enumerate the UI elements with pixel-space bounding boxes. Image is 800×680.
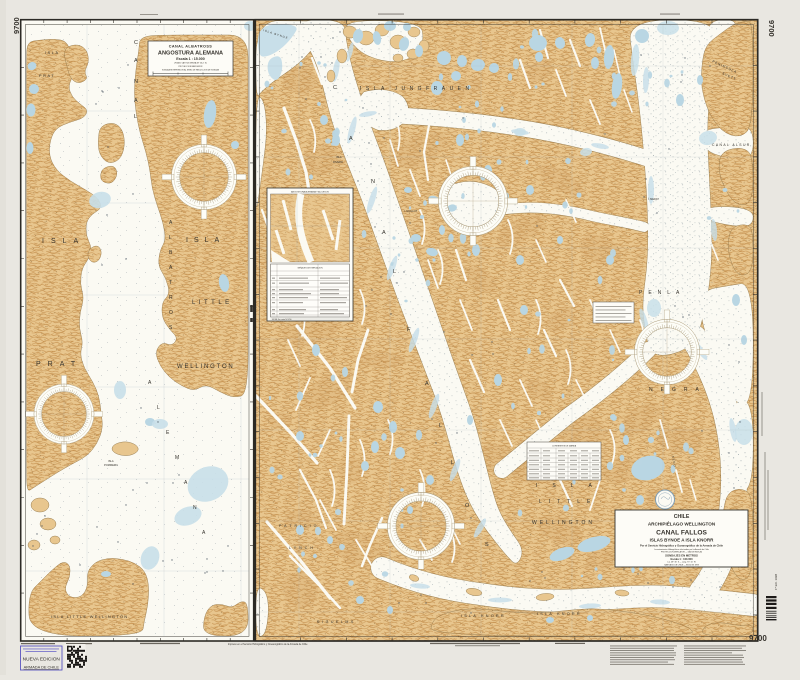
- svg-text:LYNCH: LYNCH: [289, 546, 316, 550]
- svg-text:ISLA: ISLA: [186, 237, 225, 244]
- svg-text:WELLINGTON: WELLINGTON: [177, 364, 235, 370]
- svg-text:SANTIAGO DE CHILE — EDICION 19: SANTIAGO DE CHILE — EDICION 1998: [664, 563, 699, 566]
- svg-text:Por el Servicio Hidrográfico y: Por el Servicio Hidrográfico y Oceanográ…: [640, 544, 723, 548]
- svg-text:L: L: [157, 405, 160, 411]
- svg-text:ISLA JUNGFRAUEN: ISLA JUNGFRAUEN: [360, 86, 474, 92]
- svg-text:LITTLE: LITTLE: [192, 300, 233, 306]
- svg-text:ISLA: ISLA: [42, 238, 85, 245]
- svg-text:ANGOSTURA ALEMANA: ANGOSTURA ALEMANA: [158, 51, 223, 57]
- svg-text:I. MEDIO: I. MEDIO: [648, 197, 659, 201]
- svg-text:A: A: [134, 58, 138, 64]
- svg-text:R: R: [169, 295, 173, 301]
- svg-text:L: L: [169, 235, 172, 241]
- svg-text:T: T: [169, 280, 172, 286]
- svg-text:M: M: [175, 455, 179, 461]
- svg-text:L: L: [134, 114, 137, 120]
- svg-text:PATRICIO: PATRICIO: [279, 524, 319, 528]
- svg-text:WELLINGTON: WELLINGTON: [532, 520, 595, 526]
- svg-text:ISLA LITTLE WELLINGTON: ISLA LITTLE WELLINGTON: [51, 614, 128, 619]
- svg-text:O: O: [465, 503, 470, 509]
- svg-text:Escala 1 : 100.000: Escala 1 : 100.000: [670, 557, 693, 561]
- svg-text:C: C: [333, 85, 337, 91]
- svg-text:A: A: [349, 136, 353, 142]
- svg-text:9700: 9700: [12, 17, 21, 34]
- svg-text:RIGUELMS: RIGUELMS: [317, 620, 356, 624]
- svg-text:ISLA: ISLA: [108, 459, 114, 463]
- svg-text:9700: 9700: [767, 20, 776, 37]
- svg-text:PROYECCION MERCATOR: PROYECCION MERCATOR: [179, 65, 204, 68]
- svg-text:SONDAJES EN METROS: SONDAJES EN METROS: [665, 553, 698, 557]
- svg-text:CHILE: CHILE: [674, 514, 690, 520]
- svg-text:Escala 1 : 15.000: Escala 1 : 15.000: [176, 57, 205, 61]
- svg-text:ISLA KNORR: ISLA KNORR: [461, 614, 506, 618]
- svg-text:Impreso en el Servicio Hidrogr: Impreso en el Servicio Hidrográfico y Oc…: [228, 643, 308, 646]
- svg-text:N: N: [134, 79, 138, 85]
- svg-text:SONDAJES REFERIDOS AL NIVEL DE: SONDAJES REFERIDOS AL NIVEL DE REDUCCION…: [162, 69, 220, 72]
- svg-text:9700: 9700: [749, 634, 767, 643]
- svg-text:NUEVA EDICION: NUEVA EDICION: [23, 657, 61, 663]
- svg-text:O: O: [169, 310, 173, 316]
- svg-text:PRAT: PRAT: [39, 74, 55, 78]
- svg-text:L: L: [451, 460, 454, 466]
- svg-text:ISLA: ISLA: [45, 51, 60, 55]
- svg-text:NEGRA: NEGRA: [649, 387, 707, 393]
- svg-text:LITTLE: LITTLE: [539, 499, 597, 505]
- svg-text:PRAT: PRAT: [36, 361, 82, 368]
- svg-text:CORRIENTES DE MAREA: CORRIENTES DE MAREA: [552, 445, 577, 448]
- svg-text:CANAL ALBATROSS: CANAL ALBATROSS: [169, 45, 213, 49]
- svg-text:N: N: [193, 505, 197, 511]
- svg-text:SEÑALES DE ENFILACION: SEÑALES DE ENFILACION: [297, 267, 323, 270]
- svg-text:S: S: [485, 542, 489, 548]
- svg-text:A: A: [425, 381, 429, 387]
- svg-text:CANAL ALSUR: CANAL ALSUR: [712, 143, 751, 147]
- svg-text:POMMERN: POMMERN: [104, 463, 118, 467]
- svg-text:1ᵃ ED. 1998: 1ᵃ ED. 1998: [774, 574, 778, 590]
- svg-text:A: A: [382, 230, 386, 236]
- svg-text:Levantamientos Hidrográficos e: Levantamientos Hidrográficos efectuados …: [654, 548, 709, 551]
- svg-text:ISLAS BYNOE A ISLA KNORR: ISLAS BYNOE A ISLA KNORR: [650, 538, 715, 543]
- svg-text:NOTA: Ver carta N 9700: NOTA: Ver carta N 9700: [272, 318, 291, 321]
- svg-text:PENLA: PENLA: [639, 290, 685, 296]
- svg-text:C: C: [134, 40, 138, 46]
- svg-text:RIVERO: RIVERO: [333, 160, 343, 164]
- svg-text:I. GUILLOT: I. GUILLOT: [404, 209, 418, 213]
- svg-text:ISLA: ISLA: [536, 483, 607, 489]
- svg-text:ANGOSTURA ALEMANA Y ACCESOS: ANGOSTURA ALEMANA Y ACCESOS: [291, 191, 329, 194]
- svg-text:ISLA KNORR: ISLA KNORR: [537, 612, 582, 616]
- svg-text:N: N: [371, 179, 375, 185]
- svg-text:L: L: [393, 269, 396, 275]
- svg-text:L: L: [439, 423, 442, 429]
- svg-text:ISLA: ISLA: [336, 155, 342, 159]
- svg-text:Lat. 48° 30´ S — Long. 75° 10´: Lat. 48° 30´ S — Long. 75° 10´ W: [667, 561, 695, 564]
- svg-text:A: A: [134, 98, 138, 104]
- svg-text:ARCHIPIÉLAGO WELLINGTON: ARCHIPIÉLAGO WELLINGTON: [648, 520, 716, 527]
- svg-text:ARMADA DE CHILE: ARMADA DE CHILE: [24, 664, 60, 669]
- svg-text:CANAL FALLOS: CANAL FALLOS: [656, 530, 707, 537]
- svg-text:(PLANO LATITUD MEDIA 48° 56,4´: (PLANO LATITUD MEDIA 48° 56,4´ S): [174, 62, 207, 65]
